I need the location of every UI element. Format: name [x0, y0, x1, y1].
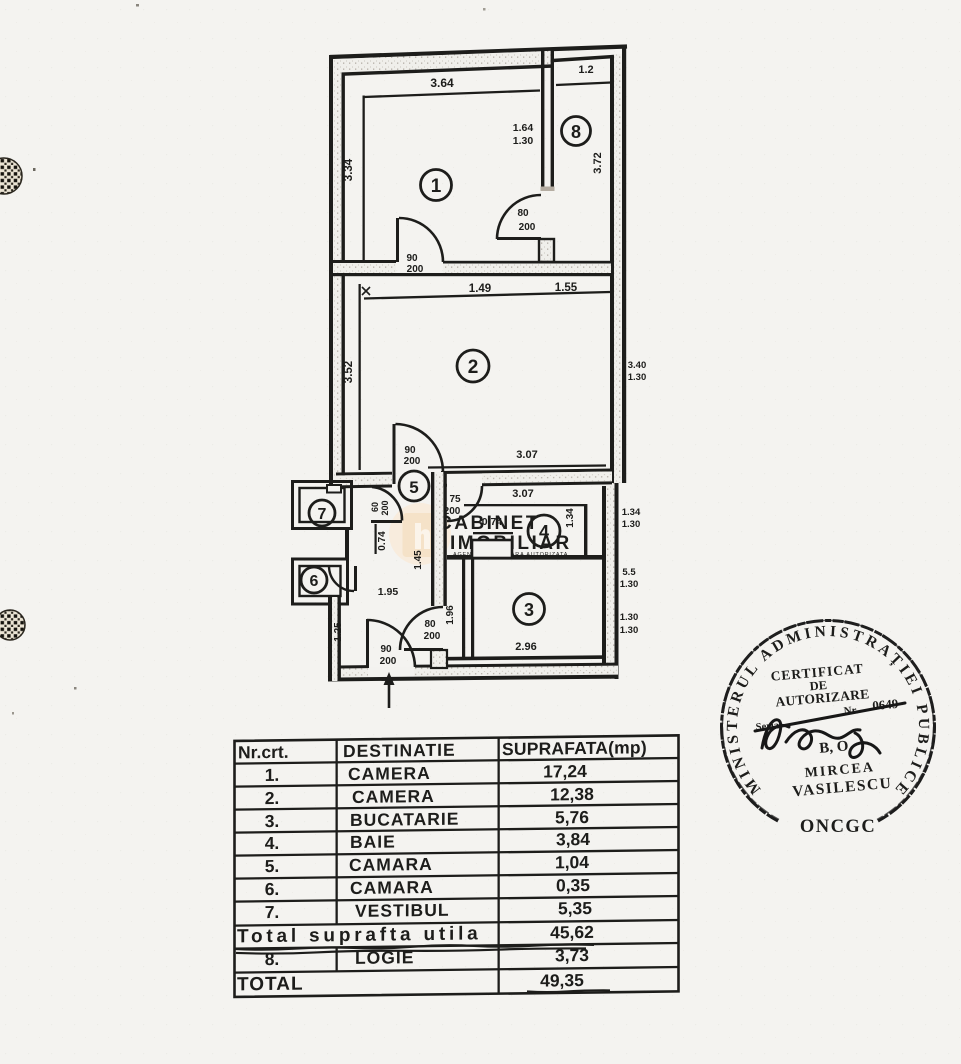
svg-text:60: 60	[370, 502, 380, 512]
svg-text:5: 5	[409, 478, 418, 497]
svg-text:7.: 7.	[265, 902, 280, 922]
svg-text:2: 2	[468, 357, 479, 378]
svg-text:CAMERA: CAMERA	[352, 786, 435, 807]
svg-text:1,04: 1,04	[555, 852, 589, 872]
svg-text:1.25: 1.25	[333, 622, 344, 642]
svg-text:3.52: 3.52	[343, 361, 355, 383]
svg-text:3.07: 3.07	[512, 488, 533, 500]
svg-text:1.34: 1.34	[622, 507, 641, 518]
svg-text:1.95: 1.95	[378, 586, 399, 598]
svg-text:Nr.crt.: Nr.crt.	[238, 742, 289, 763]
svg-text:CAMARA: CAMARA	[349, 854, 433, 875]
svg-text:5,76: 5,76	[555, 807, 589, 827]
svg-text:1.30: 1.30	[513, 135, 534, 147]
svg-text:75: 75	[449, 494, 461, 505]
svg-text:ONCGC: ONCGC	[800, 817, 876, 837]
svg-text:17,24: 17,24	[543, 761, 587, 782]
svg-text:LOGIE: LOGIE	[355, 947, 414, 968]
svg-text:SUPRAFATA(mp): SUPRAFATA(mp)	[502, 737, 647, 759]
svg-text:4.: 4.	[265, 833, 280, 853]
svg-text:90: 90	[404, 445, 416, 456]
svg-text:200: 200	[404, 456, 421, 467]
svg-text:2.96: 2.96	[515, 641, 536, 653]
svg-text:1.34: 1.34	[565, 508, 576, 528]
svg-text:1.49: 1.49	[469, 283, 491, 295]
svg-text:0,35: 0,35	[556, 875, 590, 895]
svg-text:45,62: 45,62	[550, 922, 594, 943]
svg-text:CAMERA: CAMERA	[348, 763, 431, 784]
svg-text:3,84: 3,84	[556, 829, 590, 849]
svg-text:1: 1	[431, 176, 442, 197]
svg-text:1.45: 1.45	[413, 550, 424, 570]
svg-text:VESTIBUL: VESTIBUL	[355, 900, 450, 921]
svg-text:200: 200	[424, 631, 441, 642]
svg-text:1.30: 1.30	[620, 625, 639, 636]
svg-text:BAIE: BAIE	[350, 831, 396, 852]
svg-text:6: 6	[310, 573, 319, 590]
svg-text:3.64: 3.64	[430, 76, 454, 90]
svg-text:200: 200	[519, 222, 536, 233]
svg-text:1.30: 1.30	[620, 612, 639, 623]
svg-text:5,35: 5,35	[558, 898, 592, 918]
svg-text:CAMARA: CAMARA	[350, 877, 434, 898]
svg-text:0.74: 0.74	[482, 516, 503, 528]
svg-text:3.: 3.	[265, 811, 280, 831]
svg-text:90: 90	[380, 644, 392, 655]
svg-text:3.07: 3.07	[516, 449, 537, 461]
svg-text:3,73: 3,73	[555, 945, 589, 965]
svg-text:49,35: 49,35	[540, 970, 584, 991]
svg-text:TOTAL: TOTAL	[237, 974, 304, 996]
svg-text:90: 90	[406, 253, 418, 264]
svg-text:200: 200	[380, 500, 390, 515]
svg-text:3.34: 3.34	[343, 158, 355, 181]
svg-text:5.: 5.	[265, 856, 280, 876]
svg-text:8.: 8.	[265, 949, 280, 969]
svg-text:DESTINATIE: DESTINATIE	[343, 740, 456, 761]
svg-text:80: 80	[517, 208, 529, 219]
svg-text:200: 200	[380, 656, 397, 667]
svg-text:1.2: 1.2	[578, 64, 593, 76]
svg-text:1.30: 1.30	[620, 579, 639, 590]
svg-text:1.30: 1.30	[622, 519, 641, 530]
svg-text:8: 8	[571, 122, 581, 142]
svg-text:4: 4	[539, 522, 549, 542]
svg-text:80: 80	[424, 619, 436, 630]
svg-text:7: 7	[318, 506, 327, 523]
svg-text:1.96: 1.96	[445, 605, 456, 625]
svg-text:BUCATARIE: BUCATARIE	[350, 809, 459, 830]
svg-text:3: 3	[524, 600, 534, 620]
svg-text:200: 200	[407, 264, 424, 275]
svg-text:12,38: 12,38	[550, 784, 594, 805]
svg-text:B, O: B, O	[819, 738, 849, 756]
svg-text:3.72: 3.72	[592, 152, 604, 173]
svg-text:Total suprafta utila: Total suprafta utila	[237, 923, 482, 947]
svg-text:1.: 1.	[265, 765, 280, 785]
svg-text:5.5: 5.5	[622, 567, 636, 578]
svg-text:2.: 2.	[265, 788, 280, 808]
svg-text:1.30: 1.30	[628, 372, 647, 383]
svg-text:0.74: 0.74	[377, 531, 388, 551]
svg-text:6.: 6.	[265, 879, 280, 899]
svg-text:3.40: 3.40	[628, 360, 647, 371]
svg-text:1.64: 1.64	[513, 122, 534, 134]
